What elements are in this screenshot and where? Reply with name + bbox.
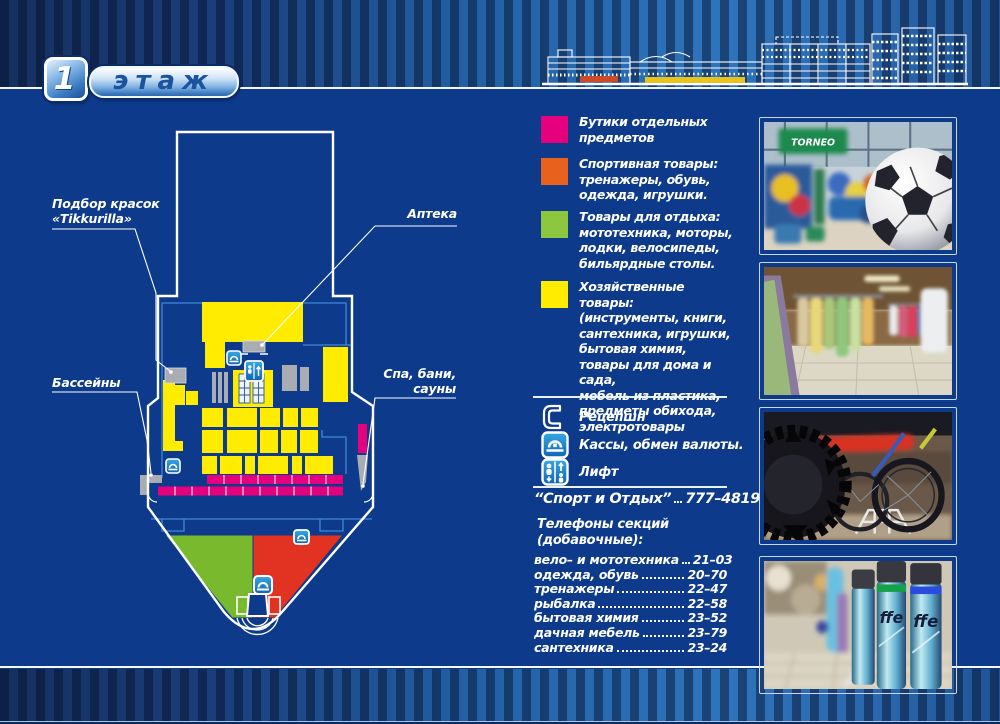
floor-plan-page: 1 этаж Подбор красок «Tikkurilla» Аптека… [0,0,1000,724]
legend-text-sports: Спортивная товары: тренажеры, обувь, оде… [579,156,734,203]
section-extension: 21–03 [693,552,733,567]
facility-label: Рецепшн [579,410,645,425]
map-cash-icon [166,459,180,473]
phone-row: тренажеры 22–47 [534,581,727,596]
main-phone-name: “Спорт и Отдых” [534,491,671,507]
clothing-store-photo [759,262,957,400]
main-entrance [237,594,280,634]
dot-leader [617,591,684,593]
map-label-pharmacy: Аптека [375,206,457,221]
section-extension: 23–52 [687,610,727,625]
zone-sports-red [253,535,343,618]
clothing-store-image [764,267,952,395]
section-name: одежда, обувь [534,567,639,582]
floor-word: этаж [113,68,215,94]
floor-word-badge: этаж [89,66,239,98]
phone-row: рыбалка 22–58 [534,596,727,611]
map-label-spa: Спа, бани, сауны [374,366,456,396]
dot-leader [643,635,685,637]
sports-goods-photo: TORNEO [759,117,957,255]
facility-elevator: Лифт [541,458,618,486]
facility-reception: Рецепшн [541,404,645,430]
elevator-icon [541,458,569,486]
phones-heading: Телефоны секций (добавочные): [537,517,669,549]
dot-leader [642,577,685,579]
bicycles-image [764,412,952,540]
cash-icon [541,431,569,459]
section-name: бытовая химия [534,610,639,625]
phone-extension-list: вело– и мототехника 21–03 одежда, обувь … [534,552,727,654]
spray-can [852,570,875,685]
map-label-pools: Бассейны [52,375,120,390]
building-outline [148,132,373,629]
legend-text-leisure: Товары для отдыха: мототехника, моторы, … [579,209,734,271]
sports-goods-image: TORNEO [764,122,952,250]
section-name: рыбалка [534,596,595,611]
can-brand-text: ffe [880,608,904,627]
section-name: сантехника [534,640,614,655]
section-name: вело– и мототехника [534,552,679,567]
zone-boutiques-pink [158,424,367,496]
zone-leisure-green [165,535,253,618]
can-brand-text: ffe [913,611,938,631]
phone-icon [541,404,565,430]
dot-leader [617,650,685,652]
legend-text-boutiques: Бутики отдельных предметов [579,114,734,145]
bicycles-photo [759,407,957,545]
dot-leader [598,606,684,608]
floor-number-badge: 1 [44,57,88,101]
section-name: тренажеры [534,581,614,596]
dot-leader [682,562,690,564]
legend-separator-2 [533,486,727,488]
spray-cans-photo: ffe ffe [759,556,957,694]
main-phone-row: “Спорт и Отдых” 777–4819 [534,491,727,507]
shelving-symbols [239,374,264,403]
gray-blocks [140,341,368,495]
legend-item-sports: Спортивная товары: тренажеры, обувь, оде… [541,158,734,203]
section-extension: 22–47 [687,581,727,596]
yellow-swatch [541,281,568,308]
section-extension: 22–58 [687,596,727,611]
phone-row: вело– и мототехника 21–03 [534,552,727,567]
orange-swatch [541,158,568,185]
legend-item-leisure: Товары для отдыха: мототехника, моторы, … [541,211,734,271]
legend-item-boutiques: Бутики отдельных предметов [541,116,734,145]
phone-row: одежда, обувь 20–70 [534,567,727,582]
facility-label: Лифт [579,465,618,480]
phone-row: сантехника 23–24 [534,640,727,655]
main-phone-number: 777–4819 [685,491,760,507]
map-elevator-icon [245,361,263,381]
map-label-paint: Подбор красок «Tikkurilla» [52,196,160,226]
spray-can: ffe [910,563,941,689]
legend-separator-1 [533,396,727,398]
spray-can: ffe [877,561,906,689]
pink-swatch [541,116,568,143]
map-cash-icon [254,576,272,594]
green-swatch [541,211,568,238]
floor-number: 1 [54,64,76,95]
entrance-door-arcs [148,493,373,502]
section-name: дачная мебель [534,625,640,640]
phone-row: дачная мебель 23–79 [534,625,727,640]
section-extension: 23–24 [687,640,727,655]
phone-row: бытовая химия 23–52 [534,610,727,625]
facility-cash: Кассы, обмен валюты. [541,431,743,459]
torneo-sign: TORNEO [791,137,835,148]
dot-leader [674,501,682,503]
section-extension: 20–70 [687,567,727,582]
map-cash-icon [294,530,309,544]
label-leader-lines [52,226,457,488]
map-cash-icon [227,351,241,365]
zone-household-yellow [163,302,348,474]
section-extension: 23–79 [687,625,727,640]
facility-label: Кассы, обмен валюты. [579,438,743,453]
spray-cans-image: ffe ffe [764,561,952,689]
dot-leader [642,620,685,622]
corridor-lines [151,303,372,531]
